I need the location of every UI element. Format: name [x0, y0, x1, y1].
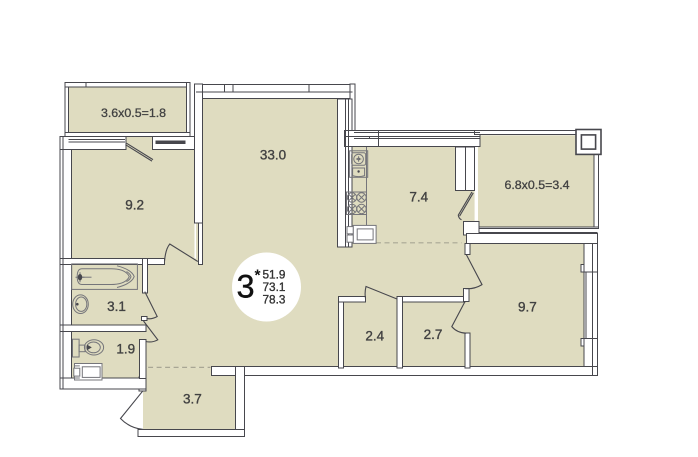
svg-text:*: * — [255, 268, 262, 285]
svg-text:33.0: 33.0 — [260, 148, 286, 163]
svg-text:3: 3 — [237, 269, 255, 305]
svg-text:3.7: 3.7 — [183, 392, 202, 407]
svg-text:1.9: 1.9 — [116, 342, 135, 357]
svg-text:2.7: 2.7 — [424, 327, 443, 342]
svg-text:7.4: 7.4 — [409, 190, 428, 205]
svg-text:3.1: 3.1 — [107, 299, 126, 314]
svg-text:9.2: 9.2 — [125, 198, 144, 213]
svg-text:78.3: 78.3 — [263, 293, 286, 307]
svg-text:2.4: 2.4 — [365, 329, 384, 344]
svg-text:6.8x0.5=3.4: 6.8x0.5=3.4 — [504, 178, 569, 192]
svg-text:9.7: 9.7 — [518, 300, 537, 315]
svg-text:3.6x0.5=1.8: 3.6x0.5=1.8 — [101, 106, 166, 120]
